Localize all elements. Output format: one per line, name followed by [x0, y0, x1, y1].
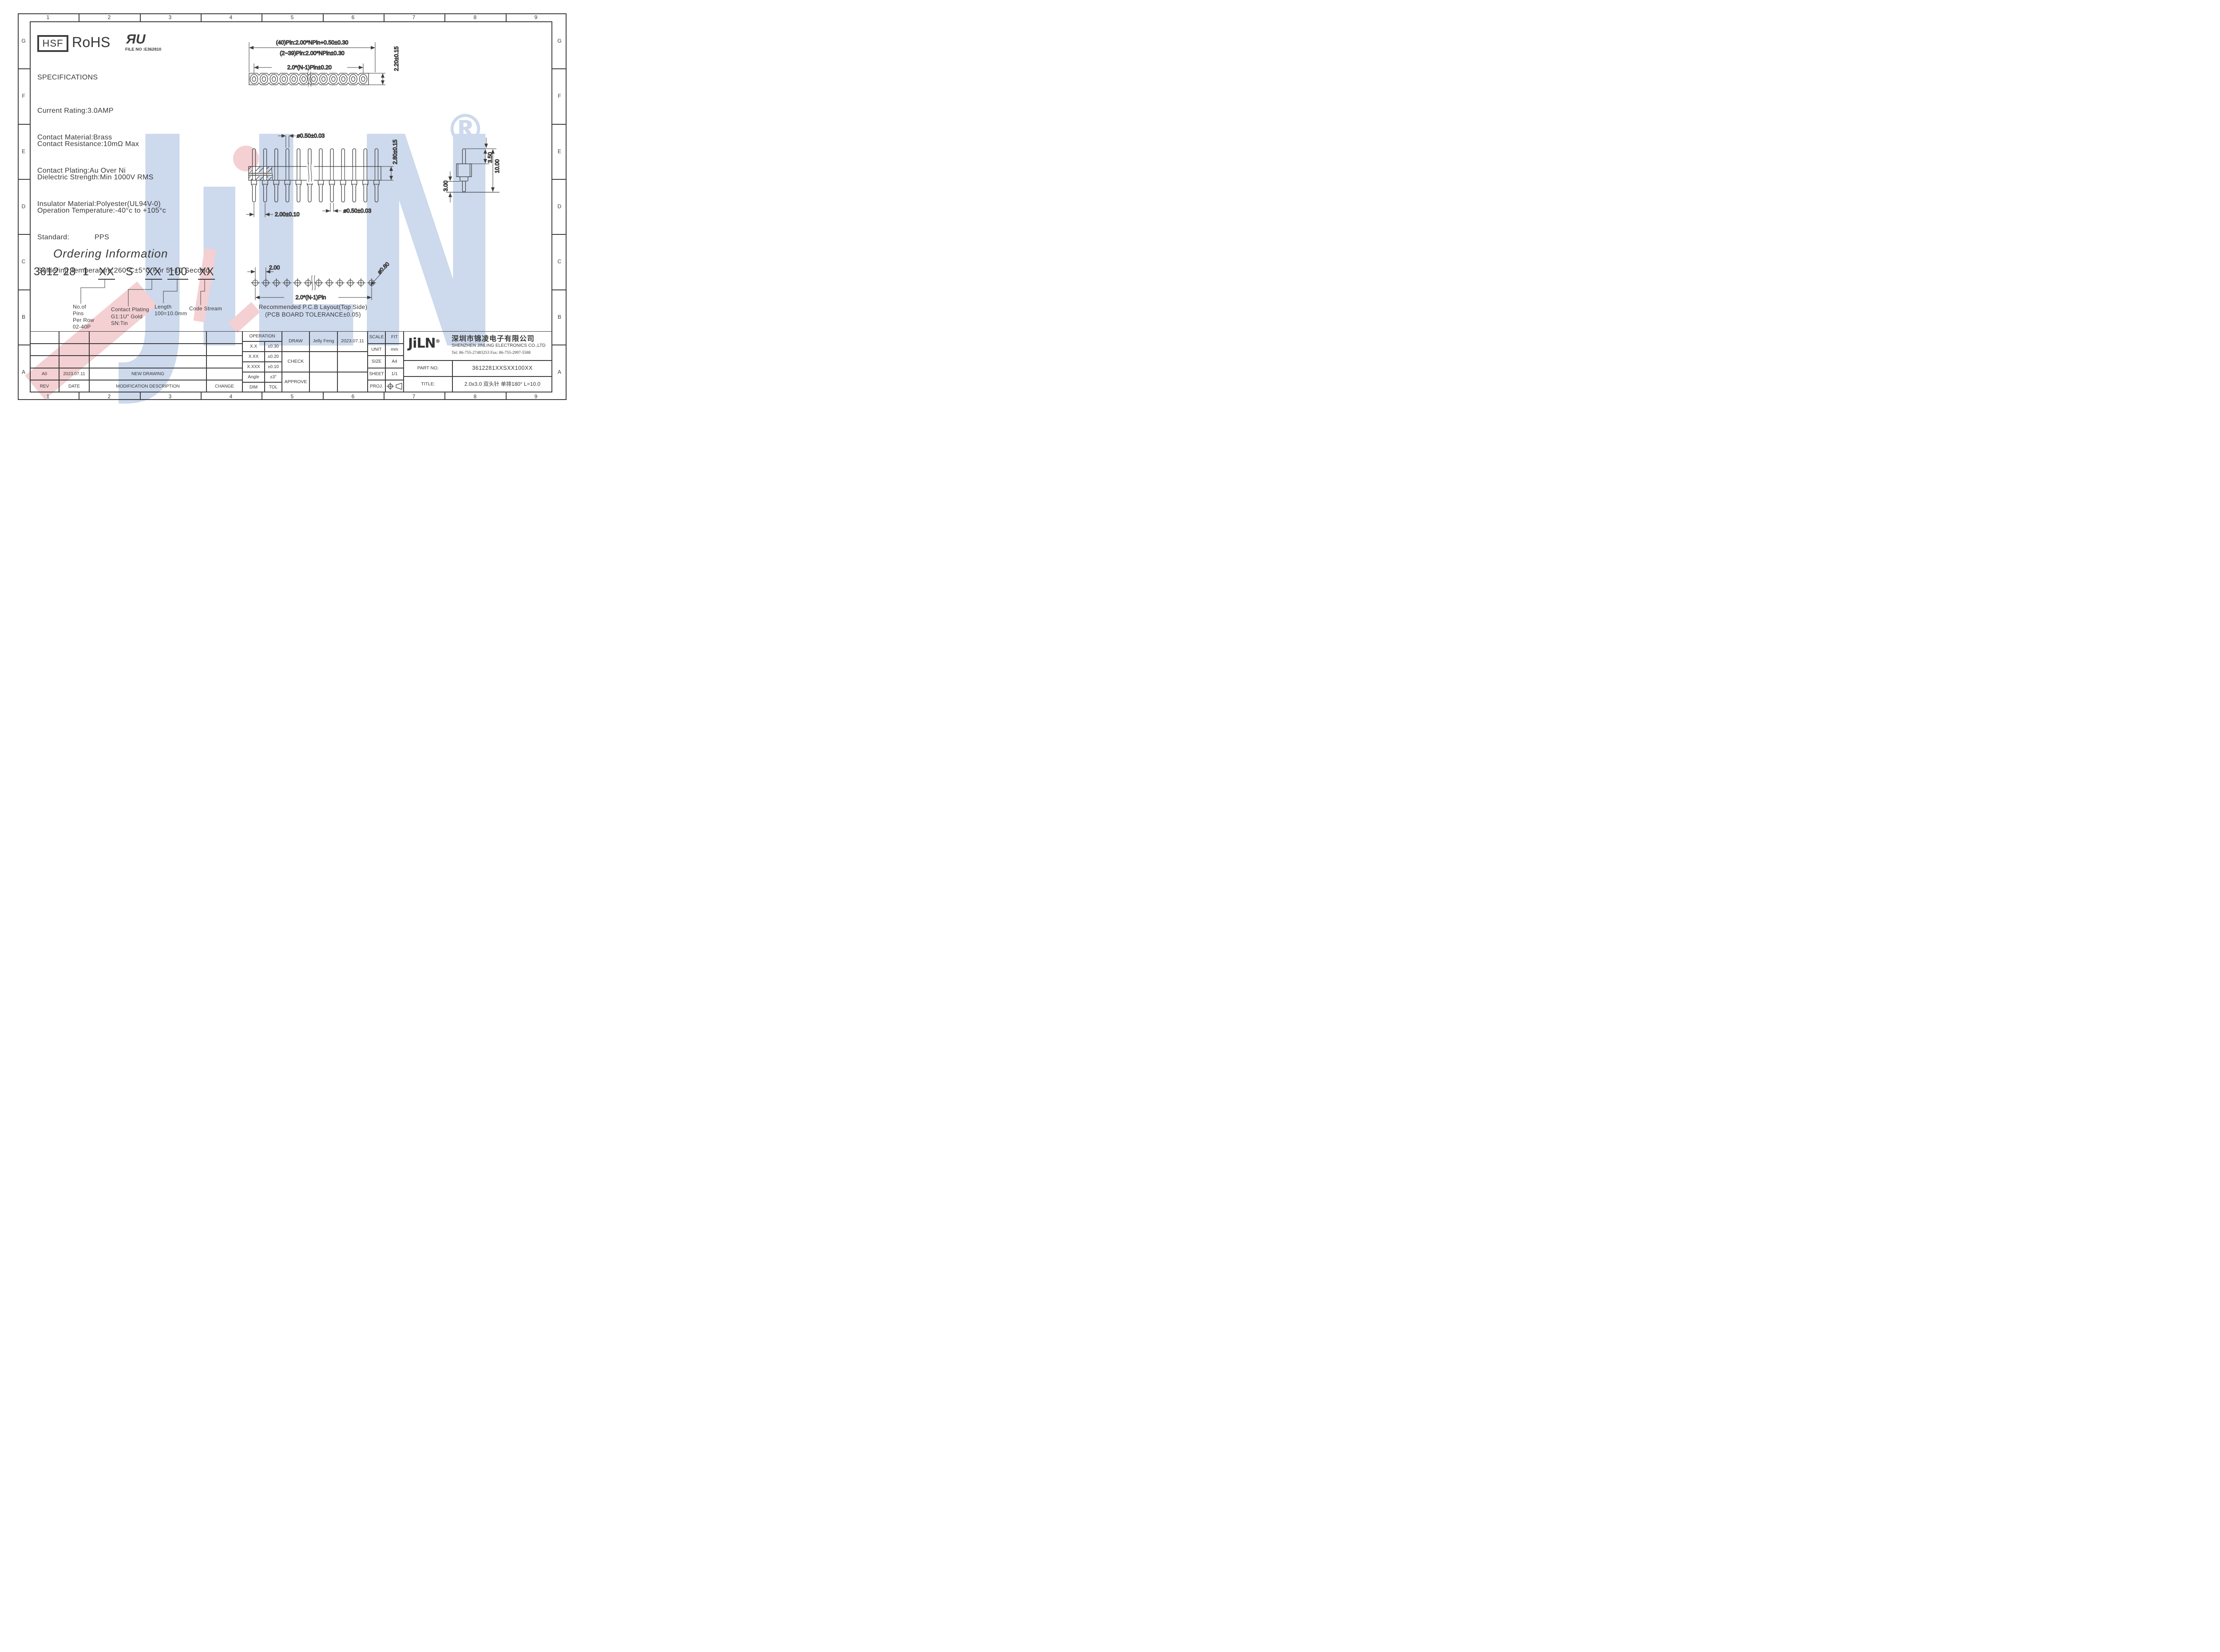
col-number-top: 2 — [108, 14, 111, 20]
col-number-bottom: 5 — [291, 393, 294, 400]
border-tick — [552, 68, 567, 69]
date-header: DATE — [59, 380, 89, 392]
row-letter-right: D — [558, 203, 562, 210]
code-plating: XX — [145, 265, 162, 280]
drawing-sheet: JıLN ® — [0, 0, 584, 413]
spec-title: SPECIFICATIONS — [37, 72, 166, 83]
part-no-label: PART NO. — [404, 361, 452, 376]
ordering-title: Ordering Information — [53, 247, 168, 261]
rev-cell-empty — [59, 344, 89, 356]
unit-label: UNIT — [368, 344, 385, 356]
company-name-en: SHENZHEN JINLING ELECTRONICS CO.,LTD — [452, 343, 551, 348]
label-line: 100=10.0mm — [155, 310, 187, 317]
tol-dim: X.XXX — [242, 362, 265, 372]
border-tick — [552, 289, 567, 290]
rev-value: A0 — [30, 368, 59, 380]
col-number-bottom: 4 — [230, 393, 233, 400]
row-letter-left: F — [22, 93, 25, 99]
label-line: Per Row — [73, 317, 94, 324]
rev-cell-empty — [89, 356, 206, 368]
border-tick — [323, 13, 324, 21]
border-tick — [18, 289, 30, 290]
row-letter-left: A — [22, 369, 25, 375]
row-letter-left: C — [22, 258, 26, 265]
pcb-caption-2: (PCB BOARD TOLERANCE±0.05) — [240, 311, 386, 318]
label-line: G1:1U" Gold — [111, 313, 149, 321]
row-letter-left: D — [22, 203, 26, 210]
approve-date — [337, 372, 368, 392]
col-number-bottom: 8 — [474, 393, 477, 400]
border-tick — [79, 392, 79, 400]
rev-desc-value: NEW DRAWING — [89, 368, 206, 380]
company-logo-registered: ® — [436, 338, 440, 344]
col-number-bottom: 1 — [47, 393, 50, 400]
col-number-top: 1 — [47, 14, 50, 20]
label-line: Length — [155, 304, 187, 310]
rev-date-value: 2023.07.11 — [59, 368, 89, 380]
size-value: A4 — [385, 356, 404, 368]
draw-name: Jelly Feng — [309, 331, 337, 352]
col-number-top: 4 — [230, 14, 233, 20]
row-letter-left: G — [21, 38, 25, 44]
part-no-value: 3612281XXSXX100XX — [452, 361, 552, 376]
row-letter-right: A — [558, 369, 561, 375]
border-tick — [384, 392, 385, 400]
col-number-top: 6 — [352, 14, 355, 20]
approve-name — [309, 372, 337, 392]
tol-val: ±0.10 — [265, 362, 282, 372]
company-name-cn: 深圳市锦凌电子有限公司 — [452, 333, 550, 343]
ordering-pins-label: No.of Pins Per Row 02-40P — [73, 304, 94, 330]
rev-cell-empty — [30, 344, 59, 356]
col-number-bottom: 9 — [535, 393, 538, 400]
row-letter-left: E — [22, 148, 25, 155]
tol-val: ±0.20 — [265, 352, 282, 362]
check-name — [309, 352, 337, 372]
border-tick — [506, 13, 507, 21]
tol-val: ±0.30 — [265, 341, 282, 352]
projection-symbol-icon — [386, 382, 403, 391]
spec-line: Contact Plating:Au Over Ni — [37, 165, 210, 176]
tol-dim: X.X — [242, 341, 265, 352]
row-letter-right: F — [558, 93, 561, 99]
proj-label: PROJ. — [368, 380, 385, 392]
rev-cell-empty — [206, 331, 242, 344]
col-number-bottom: 2 — [108, 393, 111, 400]
border-tick — [18, 124, 30, 125]
border-tick — [384, 13, 385, 21]
border-tick — [18, 68, 30, 69]
border-tick — [18, 234, 30, 235]
label-line: 02-40P — [73, 324, 94, 330]
rev-header: REV — [30, 380, 59, 392]
row-letter-left: B — [22, 314, 25, 320]
rev-cell-empty — [206, 356, 242, 368]
label-line: Contact Plating — [111, 306, 149, 313]
rev-cell-empty — [59, 331, 89, 344]
label-line: Pins — [73, 310, 94, 317]
border-tick — [262, 392, 262, 400]
draw-date: 2023.07.11 — [337, 331, 368, 352]
rev-cell-empty — [59, 356, 89, 368]
code-pitch: 28 — [63, 265, 75, 278]
spec-line: Insulator Material:Polyester(UL94V-0) — [37, 198, 210, 210]
label-line: No.of — [73, 304, 94, 310]
rev-cell-empty — [206, 344, 242, 356]
code-series: 3612 — [34, 265, 59, 278]
border-tick — [552, 124, 567, 125]
label-line: SN:Tin — [111, 320, 149, 327]
border-tick — [140, 392, 141, 400]
row-letter-right: B — [558, 314, 561, 320]
tol-val: ±3° — [265, 372, 282, 382]
col-number-bottom: 7 — [412, 393, 416, 400]
code-stream: XX — [198, 265, 215, 280]
sheet-label: SHEET — [368, 368, 385, 380]
scale-value: FIT — [385, 331, 404, 344]
border-tick — [201, 13, 202, 21]
tol-dim: Angle — [242, 372, 265, 382]
change-header: CHANGE — [206, 380, 242, 392]
operation-header: OPERATION — [242, 331, 282, 341]
spec-line: Contact Material:Brass — [37, 132, 210, 143]
rev-cell-empty — [30, 356, 59, 368]
code-length: 100 — [167, 265, 188, 280]
border-tick — [552, 345, 567, 345]
check-date — [337, 352, 368, 372]
check-label: CHECK — [282, 352, 309, 372]
code-pins: XX — [98, 265, 115, 280]
scale-label: SCALE — [368, 331, 385, 344]
col-number-bottom: 6 — [352, 393, 355, 400]
proj-symbol-cell — [385, 380, 404, 392]
border-tick — [552, 234, 567, 235]
rev-cell-empty — [89, 331, 206, 344]
border-tick — [262, 13, 262, 21]
col-number-top: 8 — [474, 14, 477, 20]
row-letter-right: G — [557, 38, 561, 44]
title-value: 2.0x3.0 双头针 单排180° L=10.0 — [452, 376, 552, 392]
border-tick — [552, 179, 567, 180]
border-tick — [444, 392, 445, 400]
rev-change-value — [206, 368, 242, 380]
col-number-top: 9 — [535, 14, 538, 20]
size-label: SIZE — [368, 356, 385, 368]
border-tick — [18, 345, 30, 345]
tol-val-header: TOL — [265, 382, 282, 392]
draw-label: DRAW — [282, 331, 309, 352]
tol-dim: X.XX — [242, 352, 265, 362]
sheet-value: 1/1 — [385, 368, 404, 380]
border-tick — [444, 13, 445, 21]
ordering-plating-label: Contact Plating G1:1U" Gold SN:Tin — [111, 306, 149, 327]
title-block: A0 2023.07.11 NEW DRAWING REV DATE MODIF… — [30, 331, 552, 392]
border-tick — [506, 392, 507, 400]
col-number-bottom: 3 — [169, 393, 172, 400]
spec-line: Standard: PPS — [37, 232, 210, 243]
unit-value: mm — [385, 344, 404, 356]
company-tel-fax: Tel: 86-755-27483253 Fax: 86-755-2997-55… — [452, 351, 551, 355]
title-label: TITLE: — [404, 376, 452, 392]
border-tick — [79, 13, 79, 21]
company-logo: JiLN® — [408, 336, 440, 351]
company-logo-text: JiLN — [408, 336, 436, 351]
border-tick — [140, 13, 141, 21]
col-number-top: 5 — [291, 14, 294, 20]
code-type: S — [126, 265, 133, 278]
approve-label: APPROVE — [282, 372, 309, 392]
modification-header: MODIFICATION DESCRIPTION — [89, 380, 206, 392]
ordering-stream-label: Code Stream — [189, 305, 222, 312]
pcb-caption-1: Recommended P.C.B Layout(Top Side) — [240, 304, 386, 310]
rev-cell-empty — [30, 331, 59, 344]
border-tick — [18, 179, 30, 180]
border-tick — [323, 392, 324, 400]
border-tick — [201, 392, 202, 400]
rohs-logo: RoHS — [72, 34, 111, 51]
ul-logo: ЯU — [126, 32, 146, 47]
row-letter-right: C — [558, 258, 562, 265]
tol-dim-header: DIM — [242, 382, 265, 392]
code-rows: 1 — [83, 265, 89, 278]
rev-cell-empty — [89, 344, 206, 356]
col-number-top: 3 — [169, 14, 172, 20]
row-letter-right: E — [558, 148, 561, 155]
col-number-top: 7 — [412, 14, 416, 20]
ordering-length-label: Length 100=10.0mm — [155, 304, 187, 317]
